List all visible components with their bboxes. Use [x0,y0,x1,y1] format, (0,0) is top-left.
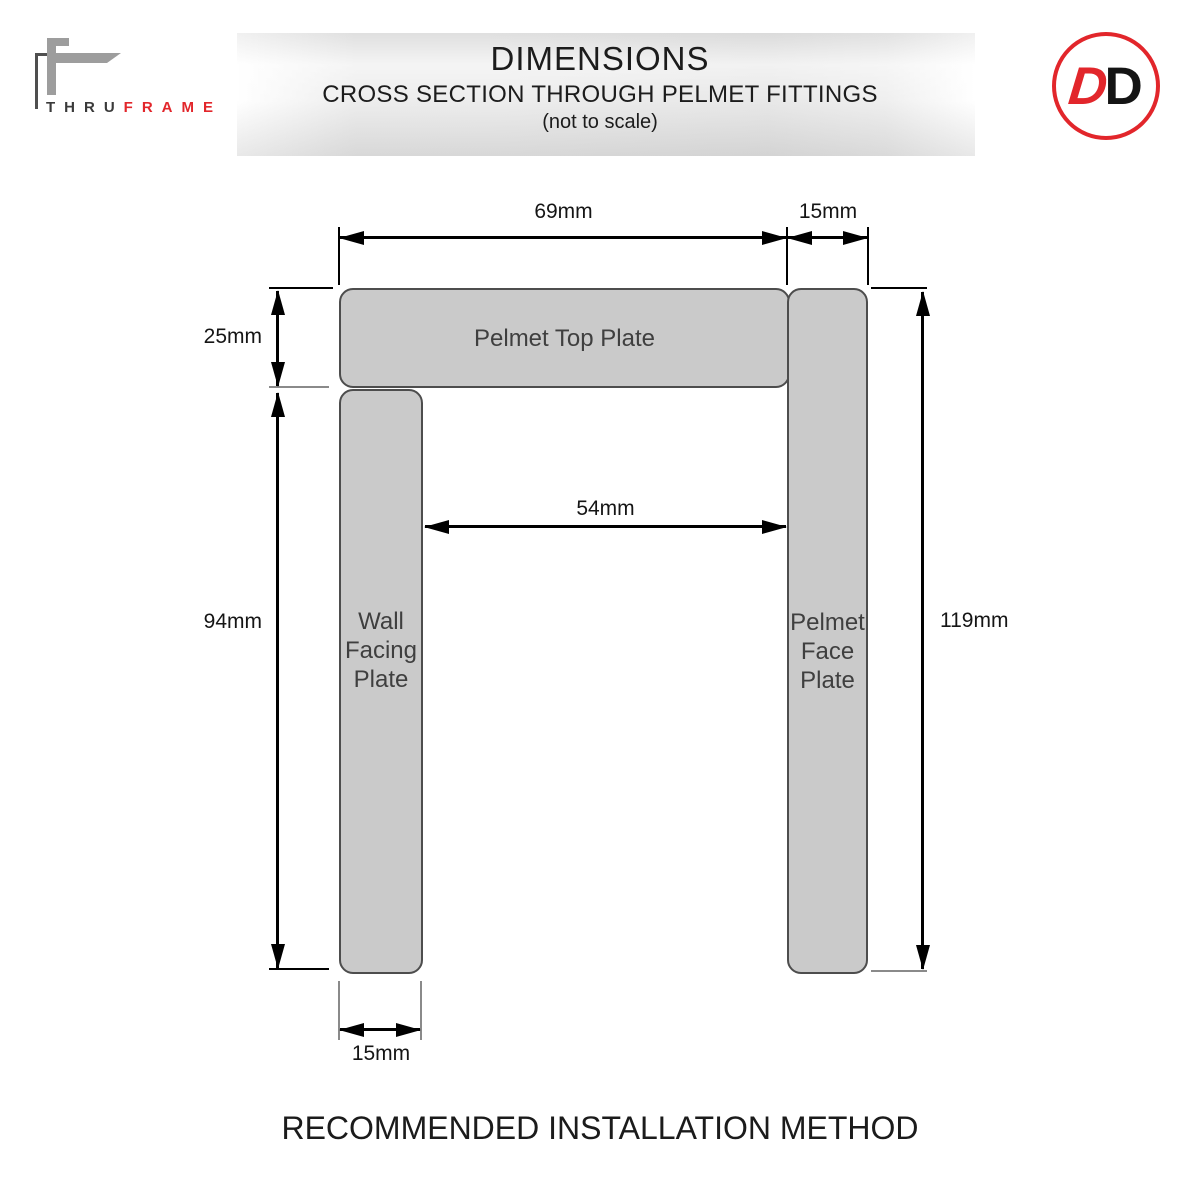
dim-label-inner-gap: 54mm [425,496,786,522]
footer-title: RECOMMENDED INSTALLATION METHOD [0,1110,1200,1147]
pelmet-face-plate-label: Pelmet Face Plate [789,608,866,695]
dim-label-wall-plate-height: 94mm [178,609,262,635]
pelmet-top-plate: Pelmet Top Plate [339,288,790,388]
wall-label-line2: Facing [341,636,421,665]
pelmet-top-plate-label: Pelmet Top Plate [474,324,655,353]
header-titles: DIMENSIONS CROSS SECTION THROUGH PELMET … [0,40,1200,134]
extension-line [269,968,329,970]
page: THRUFRAME DIMENSIONS CROSS SECTION THROU… [0,0,1200,1200]
dim-label-overall-height: 119mm [940,608,1008,634]
dim-arrow-top-plate-width [340,236,786,239]
page-subtitle: CROSS SECTION THROUGH PELMET FITTINGS [0,81,1200,108]
scale-note: (not to scale) [0,110,1200,134]
wall-facing-plate: Wall Facing Plate [339,389,423,974]
page-title: DIMENSIONS [0,40,1200,78]
dim-arrow-wall-plate-width [340,1028,420,1031]
dim-arrow-top-plate-thickness [276,291,279,386]
wall-label-line1: Wall [341,607,421,636]
wall-facing-plate-label: Wall Facing Plate [341,607,421,694]
dim-label-top-plate-thickness: 25mm [178,324,262,350]
dim-label-wall-plate-width: 15mm [336,1041,426,1067]
extension-line [871,287,927,289]
dim-arrow-wall-plate-height [276,393,279,968]
dd-logo: D D [1052,32,1160,140]
dim-label-top-plate-width: 69mm [340,199,787,225]
pelmet-face-plate: Pelmet Face Plate [787,288,868,974]
face-label-line3: Plate [789,666,866,695]
dd-logo-letter-1: D [1066,60,1110,113]
face-label-line1: Pelmet [789,608,866,637]
dim-arrow-overall-height [921,292,924,969]
dim-label-face-plate-width: 15mm [787,199,869,225]
dim-arrow-inner-gap [425,525,786,528]
dim-arrow-face-plate-width [788,236,867,239]
wall-label-line3: Plate [341,665,421,694]
face-label-line2: Face [789,637,866,666]
extension-line [269,287,333,289]
extension-line [871,970,927,972]
dd-logo-letter-2: D [1105,60,1143,113]
